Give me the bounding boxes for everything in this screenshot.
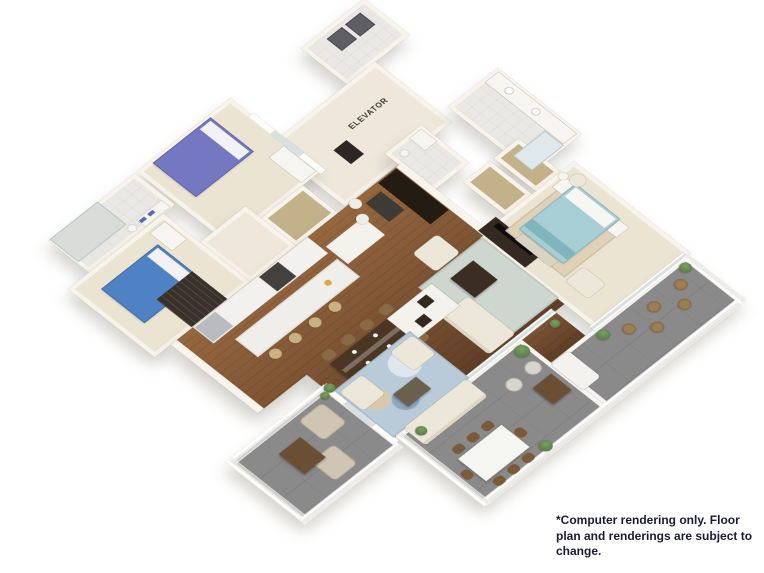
floorplan-render: ELEVATOR [0, 0, 764, 573]
disclaimer-text: *Computer rendering only. Floor plan and… [556, 513, 761, 560]
laundry-room [301, 0, 410, 84]
isometric-plan: ELEVATOR [1, 0, 764, 573]
